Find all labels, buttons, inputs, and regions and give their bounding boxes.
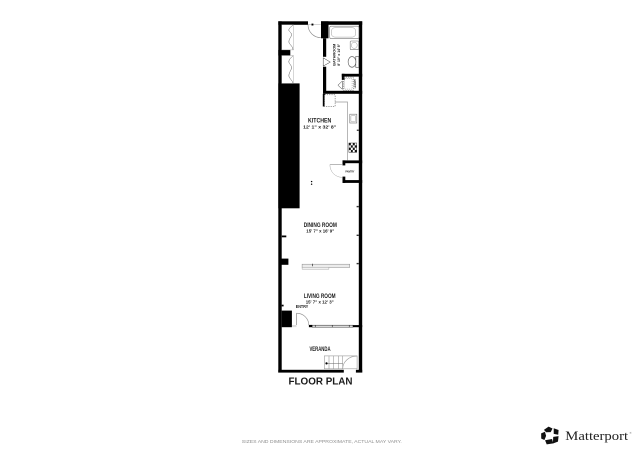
svg-text:FLOOR PLAN: FLOOR PLAN	[289, 377, 353, 388]
svg-text:PANTRY: PANTRY	[345, 171, 354, 174]
svg-text:VERANDA: VERANDA	[309, 346, 330, 353]
svg-text:ENTRY: ENTRY	[296, 304, 309, 309]
svg-text:BATHROOM: BATHROOM	[331, 43, 336, 66]
svg-text:LAUNDRY: LAUNDRY	[354, 79, 357, 88]
svg-text:Matterport: Matterport	[565, 429, 628, 443]
svg-text:15' 7" x 16' 9": 15' 7" x 16' 9"	[306, 229, 334, 234]
svg-text:12' 1" x 32' 8": 12' 1" x 32' 8"	[303, 124, 336, 129]
svg-text:SIZES AND DIMENSIONS ARE APPRO: SIZES AND DIMENSIONS ARE APPROXIMATE, AC…	[242, 439, 402, 445]
svg-text:15' 7" x 12' 3": 15' 7" x 12' 3"	[306, 300, 334, 305]
svg-text:8' 10" x 14' 8": 8' 10" x 14' 8"	[337, 43, 341, 65]
